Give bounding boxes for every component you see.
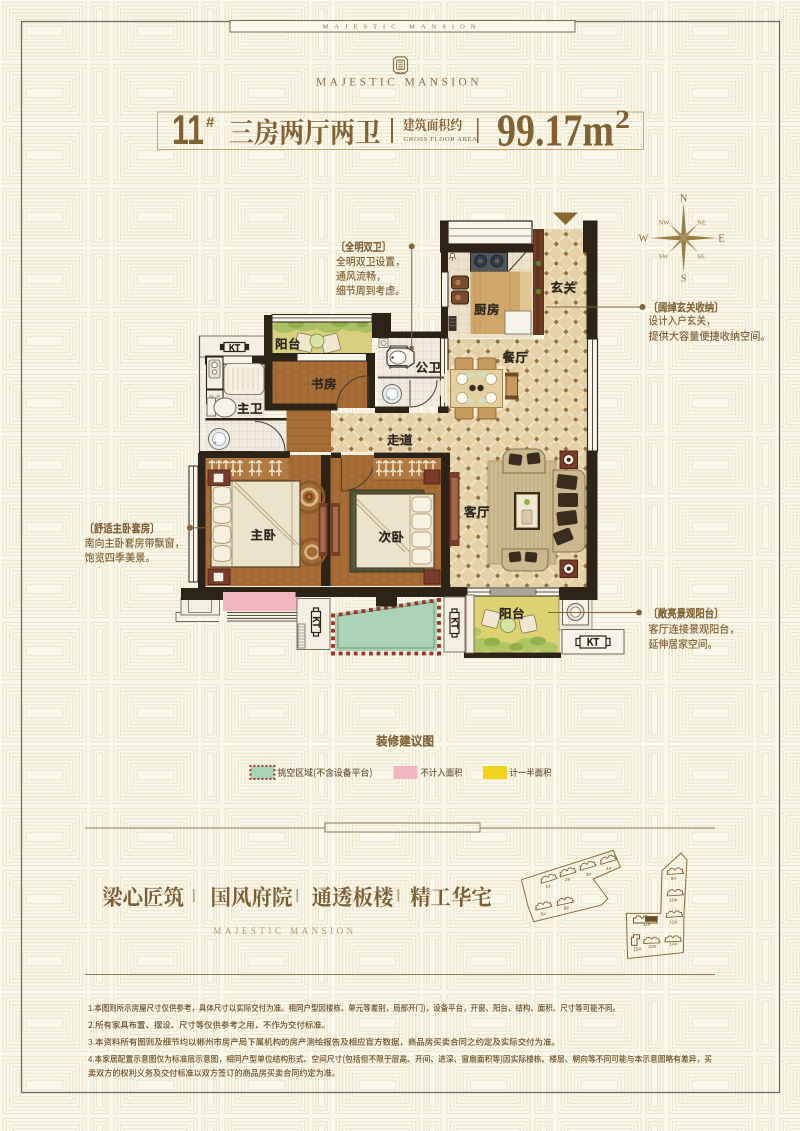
svg-text:12#: 12# <box>669 920 677 926</box>
svg-text:卖双方的权利义务及交付标准以双方签订的商品房买卖合同约定为准: 卖双方的权利义务及交付标准以双方签订的商品房买卖合同约定为准。 <box>88 1067 340 1079</box>
svg-text:精工华宅: 精工华宅 <box>410 881 492 912</box>
svg-text:客厅: 客厅 <box>463 502 490 521</box>
svg-text:走道: 走道 <box>386 430 413 449</box>
svg-text:KT: KT <box>448 617 461 629</box>
svg-text:3.本资料所有图则及细节均以郴州市房产局下属机构的房产测绘报: 3.本资料所有图则及细节均以郴州市房产局下属机构的房产测绘报告及相应官方数据，商… <box>88 1036 560 1048</box>
svg-text:NW: NW <box>659 220 671 227</box>
svg-text:KT: KT <box>229 341 241 354</box>
svg-text:阳台: 阳台 <box>275 334 301 353</box>
svg-text:阳台: 阳台 <box>499 603 525 622</box>
svg-text:MAJESTIC MANSION: MAJESTIC MANSION <box>213 926 356 936</box>
svg-text:GROSS FLOOR AREA: GROSS FLOOR AREA <box>404 136 478 143</box>
svg-text:N: N <box>680 194 688 205</box>
svg-text:SE: SE <box>697 254 705 261</box>
svg-text:13#: 13# <box>648 944 656 950</box>
svg-text:书房: 书房 <box>311 374 337 393</box>
svg-text:厨房: 厨房 <box>474 299 500 318</box>
svg-text:提供大容量便捷收纳空间。: 提供大容量便捷收纳空间。 <box>649 328 771 344</box>
svg-text:装修建议图: 装修建议图 <box>375 731 434 750</box>
svg-text:99.17m: 99.17m <box>497 106 614 156</box>
svg-text:2.所有家具布置、摆设、尺寸等仅供参考之用，不作为交付标准。: 2.所有家具布置、摆设、尺寸等仅供参考之用，不作为交付标准。 <box>88 1019 330 1031</box>
svg-text:MAJESTIC MANSION: MAJESTIC MANSION <box>316 77 482 89</box>
svg-text:4.本家居配置示意图仅为标准层示意图，相同户型单位结构形式、: 4.本家居配置示意图仅为标准层示意图，相同户型单位结构形式、空间尺寸(包括但不限… <box>88 1053 712 1065</box>
svg-text:建筑面积约: 建筑面积约 <box>403 115 462 135</box>
svg-text:W: W <box>639 234 649 245</box>
svg-text:2: 2 <box>615 105 630 134</box>
svg-text:KT: KT <box>587 634 600 649</box>
svg-text:设计入户玄关，: 设计入户玄关， <box>649 313 716 329</box>
svg-text:主卫: 主卫 <box>237 398 263 417</box>
svg-text:11: 11 <box>172 106 204 153</box>
svg-text:三房两厅两卫: 三房两厅两卫 <box>229 112 381 152</box>
svg-text:5#: 5# <box>541 911 547 917</box>
svg-text:4#: 4# <box>606 866 612 872</box>
svg-text:主卧: 主卧 <box>250 525 276 544</box>
svg-text:SW: SW <box>659 254 670 261</box>
svg-text:9#: 9# <box>671 876 677 882</box>
svg-text:国风府院: 国风府院 <box>211 881 293 912</box>
svg-text:3#: 3# <box>586 872 592 878</box>
svg-text:S: S <box>681 274 687 285</box>
svg-text:11#: 11# <box>643 922 651 928</box>
svg-text:2#: 2# <box>565 877 571 883</box>
svg-text:14#: 14# <box>669 942 677 948</box>
svg-text:玄关: 玄关 <box>550 277 576 296</box>
svg-text:延伸居家空间。: 延伸居家空间。 <box>649 636 718 652</box>
svg-text:10#: 10# <box>669 898 677 904</box>
svg-text:KT: KT <box>310 616 323 628</box>
svg-text:梁心匠筑: 梁心匠筑 <box>102 881 184 912</box>
svg-text:饱览四季美景。: 饱览四季美景。 <box>85 550 156 566</box>
svg-text:E: E <box>718 234 724 245</box>
svg-text:计一半面积: 计一半面积 <box>510 765 552 779</box>
svg-text:#: # <box>206 114 215 131</box>
svg-text:次卧: 次卧 <box>378 527 404 546</box>
svg-text:细节周到考虑。: 细节周到考虑。 <box>336 283 405 299</box>
svg-text:挑空区域(不含设备平台): 挑空区域(不含设备平台) <box>278 765 373 779</box>
svg-text:1#: 1# <box>545 884 551 890</box>
svg-text:1.本图则所示房屋尺寸仅供参考，具体尺寸以实际交付为准。相同: 1.本图则所示房屋尺寸仅供参考，具体尺寸以实际交付为准。相同户型因楼栋、单元等差… <box>88 1002 620 1014</box>
svg-text:不计入面积: 不计入面积 <box>421 765 463 779</box>
svg-text:餐厅: 餐厅 <box>501 347 528 366</box>
svg-text:客厅连接景观阳台，: 客厅连接景观阳台， <box>649 621 740 637</box>
svg-text:通透板楼: 通透板楼 <box>312 881 396 912</box>
svg-text:8#: 8# <box>564 906 570 912</box>
svg-text:公卫: 公卫 <box>415 357 441 376</box>
svg-text:NE: NE <box>697 220 706 227</box>
svg-text:15#: 15# <box>633 947 641 953</box>
svg-text:MAJESTIC MANSION: MAJESTIC MANSION <box>322 24 481 31</box>
svg-text:〔敞亮景观阳台〕: 〔敞亮景观阳台〕 <box>649 606 724 622</box>
